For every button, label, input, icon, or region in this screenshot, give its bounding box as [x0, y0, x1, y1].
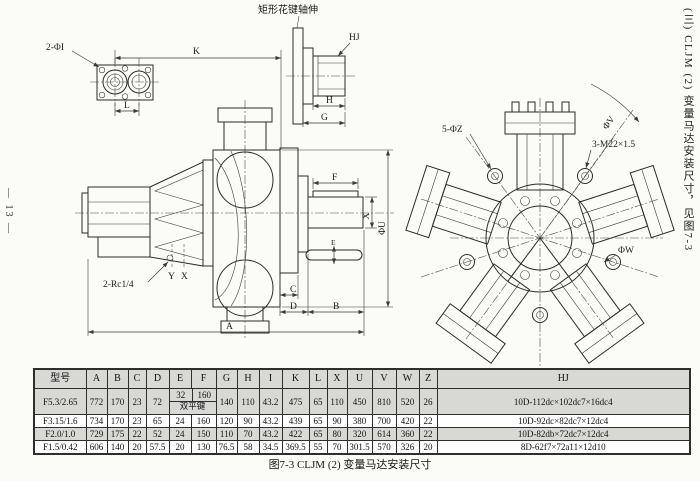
cell-u: 301.5	[347, 441, 372, 455]
cell-w: 360	[396, 428, 419, 441]
cell-h: 90	[237, 415, 259, 428]
cell-l: 65	[309, 389, 327, 415]
dim-label-f: F	[332, 173, 337, 183]
dim-label-l: L	[124, 101, 130, 111]
motor-front-view: 5-ΦZ 3-M22×1.5 ΦV ΦW	[406, 84, 674, 366]
dim-label-g: G	[321, 113, 328, 123]
table-row: F5.3/2.65 772 170 23 72 32 160 双平键 140 1…	[34, 389, 690, 415]
cell-a: 729	[86, 428, 107, 441]
cell-a: 606	[86, 441, 107, 455]
dim-label-phi-v: ΦV	[601, 115, 617, 132]
cell-k: 422	[282, 428, 309, 441]
cell-model: F1.5/0.42	[34, 441, 86, 455]
cell-g: 120	[216, 415, 237, 428]
cell-i: 34.5	[259, 441, 282, 455]
hj-label: HJ	[349, 33, 360, 43]
cell-x: 90	[327, 415, 347, 428]
cell-l: 65	[309, 428, 327, 441]
col-header-z: Z	[419, 369, 437, 389]
cell-l: 65	[309, 415, 327, 428]
figure-caption: 图7-3 CLJM (2) 变量马达安装尺寸	[0, 456, 700, 472]
cell-h: 70	[237, 428, 259, 441]
cell-w: 326	[396, 441, 419, 455]
col-header-model: 型号	[34, 369, 86, 389]
col-header-u: U	[347, 369, 372, 389]
cell-c: 22	[128, 428, 146, 441]
col-header-a: A	[86, 369, 107, 389]
cell-i: 43.2	[259, 428, 282, 441]
cell-hj: 10D-112dc×102dc7×16dc4	[437, 389, 690, 415]
cell-model: F2.0/1.0	[34, 428, 86, 441]
cell-u: 320	[347, 428, 372, 441]
table-row: F3.15/1.6 734 170 23 65 24 160 120 90 43…	[34, 415, 690, 428]
cell-d: 52	[146, 428, 169, 441]
col-header-i: I	[259, 369, 282, 389]
col-header-hj: HJ	[437, 369, 690, 389]
port-label-y: Y	[168, 272, 175, 282]
cell-v: 614	[372, 428, 396, 441]
rc-ports-label: 2-Rc1/4	[103, 280, 134, 290]
dim-label-phi-w: ΦW	[618, 246, 634, 256]
cell-w: 420	[396, 415, 419, 428]
dim-label-d: D	[290, 302, 297, 312]
cell-v: 700	[372, 415, 396, 428]
cell-d: 57.5	[146, 441, 169, 455]
cell-e: 24	[169, 428, 191, 441]
cell-v: 810	[372, 389, 396, 415]
table-row: F1.5/0.42 606 140 20 57.5 20 130 76.5 58…	[34, 441, 690, 455]
cell-z: 22	[419, 428, 437, 441]
cell-b: 170	[107, 389, 128, 415]
col-header-f: F	[191, 369, 216, 389]
table-row: F2.0/1.0 729 175 22 52 24 150 110 70 43.…	[34, 428, 690, 441]
cell-h: 58	[237, 441, 259, 455]
col-header-d: D	[146, 369, 169, 389]
dim-label-e: E	[331, 238, 336, 247]
dim-label-k: K	[193, 47, 200, 57]
cell-v: 570	[372, 441, 396, 455]
motor-side-view: 2-Rc1/4 Y X F E X ΦU C D B	[75, 100, 394, 338]
cell-model: F5.3/2.65	[34, 389, 86, 415]
cell-x: 110	[327, 389, 347, 415]
cell-f: 150	[191, 428, 216, 441]
col-header-e: E	[169, 369, 191, 389]
ef-note: 双平键	[170, 402, 216, 414]
cell-c: 20	[128, 441, 146, 455]
cell-e-top: 32	[170, 389, 193, 401]
port-label-x: X	[181, 272, 188, 282]
cell-i: 43.2	[259, 415, 282, 428]
cell-i: 43.2	[259, 389, 282, 415]
table-header-row: 型号 A B C D E F G H I K L X U V W Z HJ	[34, 369, 690, 389]
cell-g: 110	[216, 428, 237, 441]
cell-f: 160	[191, 415, 216, 428]
cell-h: 110	[237, 389, 259, 415]
cell-d: 65	[146, 415, 169, 428]
cell-a: 772	[86, 389, 107, 415]
thread-holes-label: 3-M22×1.5	[592, 140, 635, 150]
bolt-holes-label: 5-ΦZ	[442, 125, 463, 135]
cell-k: 475	[282, 389, 309, 415]
ef-split-cell: 32 160 双平键	[169, 389, 216, 415]
col-header-c: C	[128, 369, 146, 389]
col-header-h: H	[237, 369, 259, 389]
cell-f: 130	[191, 441, 216, 455]
dim-label-c: C	[290, 285, 296, 295]
cell-a: 734	[86, 415, 107, 428]
cell-l: 55	[309, 441, 327, 455]
technical-drawing: L 2-ΦI K 矩形花键轴伸 HJ H G	[0, 0, 700, 366]
cell-u: 380	[347, 415, 372, 428]
col-header-l: L	[309, 369, 327, 389]
col-header-b: B	[107, 369, 128, 389]
cell-f-top: 160	[192, 389, 216, 401]
cell-model: F3.15/1.6	[34, 415, 86, 428]
cell-k: 439	[282, 415, 309, 428]
dimension-table: 型号 A B C D E F G H I K L X U V W Z HJ F5…	[33, 368, 691, 455]
col-header-v: V	[372, 369, 396, 389]
cell-x: 80	[327, 428, 347, 441]
cell-hj: 8D-62f7×72a11×12d10	[437, 441, 690, 455]
dim-label-b: B	[333, 302, 339, 312]
cell-e: 20	[169, 441, 191, 455]
port-count-label: 2-ΦI	[46, 43, 64, 53]
port-flange-view: L 2-ΦI	[46, 43, 161, 116]
spline-shaft-detail: 矩形花键轴伸 HJ H G	[258, 3, 360, 127]
cell-g: 76.5	[216, 441, 237, 455]
cell-b: 175	[107, 428, 128, 441]
cell-w: 520	[396, 389, 419, 415]
cell-b: 140	[107, 441, 128, 455]
cell-hj: 10D-92dc×82dc7×12dc4	[437, 415, 690, 428]
col-header-x: X	[327, 369, 347, 389]
cell-k: 369.5	[282, 441, 309, 455]
cell-z: 26	[419, 389, 437, 415]
cell-b: 170	[107, 415, 128, 428]
dim-label-h: H	[326, 96, 333, 106]
cell-c: 23	[128, 415, 146, 428]
cell-c: 23	[128, 389, 146, 415]
col-header-g: G	[216, 369, 237, 389]
cell-d: 72	[146, 389, 169, 415]
cell-u: 450	[347, 389, 372, 415]
dim-label-x: X	[362, 212, 372, 219]
cell-hj: 10D-82db×72dc7×12dc4	[437, 428, 690, 441]
cell-z: 22	[419, 415, 437, 428]
spline-note: 矩形花键轴伸	[258, 3, 318, 16]
dim-k: K	[115, 47, 281, 150]
dim-label-phi-u: ΦU	[378, 221, 388, 235]
col-header-k: K	[282, 369, 309, 389]
cell-g: 140	[216, 389, 237, 415]
cell-x: 70	[327, 441, 347, 455]
cell-z: 20	[419, 441, 437, 455]
cell-e: 24	[169, 415, 191, 428]
dim-label-a: A	[226, 322, 233, 332]
col-header-w: W	[396, 369, 419, 389]
